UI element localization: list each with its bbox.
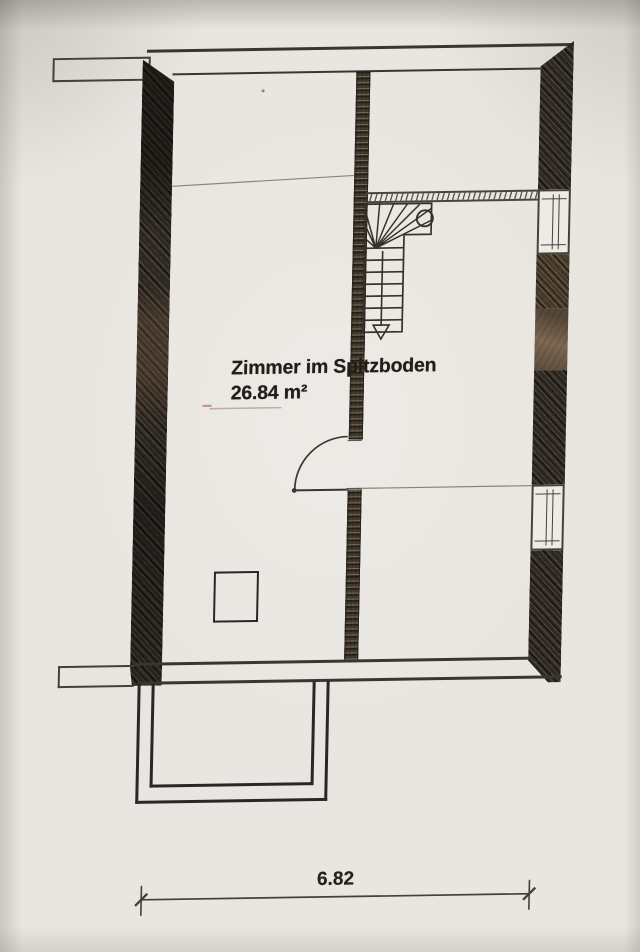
- plan-linework: [0, 0, 640, 952]
- dimension-shaft: [141, 894, 529, 900]
- room-label: Zimmer im Spitzboden 26.84 m²: [230, 353, 436, 406]
- stair-treads: [363, 248, 404, 321]
- dimension-value: 6.82: [289, 868, 381, 891]
- door-jambs: [347, 440, 362, 488]
- floor-plan: Zimmer im Spitzboden 26.84 m² 6.82: [0, 0, 640, 952]
- sill-line: [360, 486, 532, 489]
- faded-line-artifact: [209, 408, 281, 409]
- door-swing-arc: [295, 437, 348, 490]
- stairs-symbol: [363, 203, 433, 339]
- height-line: [172, 175, 354, 186]
- scanned-floor-plan-page: Zimmer im Spitzboden 26.84 m² 6.82: [0, 0, 640, 952]
- door-hinge-dot: [292, 488, 297, 493]
- room-area-text: 26.84 m²: [230, 378, 436, 406]
- stair-outline: [363, 203, 432, 332]
- door-symbol: [292, 436, 362, 493]
- scan-dot-artifact: [262, 89, 265, 92]
- walk-line: [381, 251, 383, 325]
- door-leaf: [295, 490, 348, 491]
- room-name-text: Zimmer im Spitzboden: [231, 353, 437, 381]
